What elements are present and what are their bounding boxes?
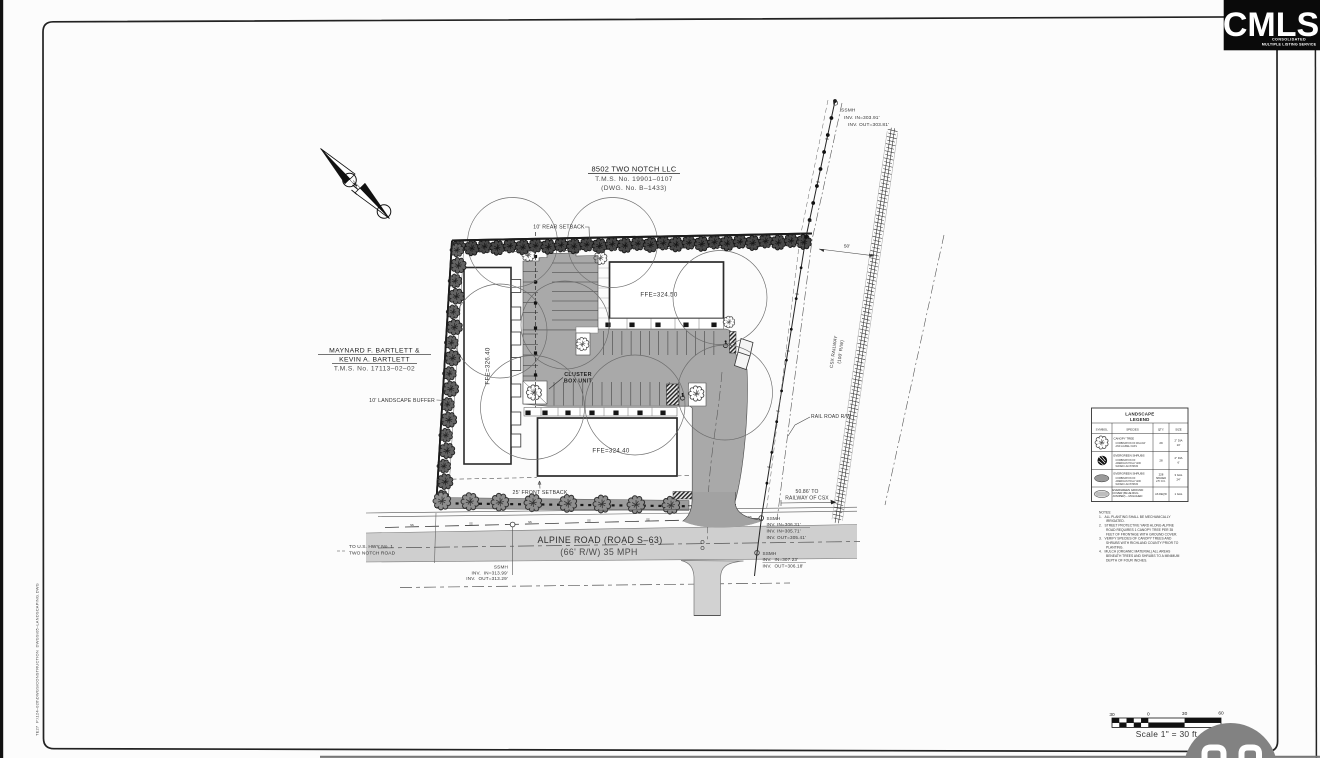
svg-text:ss: ss [469, 522, 473, 526]
svg-text:2" DIA: 2" DIA [1175, 439, 1183, 443]
svg-text:MULTIPLE LISTING SERVICE: MULTIPLE LISTING SERVICE [1262, 42, 1317, 46]
svg-text:10' LANDSCAPE BUFFER: 10' LANDSCAPE BUFFER [369, 398, 435, 404]
svg-text:8502 TWO NOTCH LLC: 8502 TWO NOTCH LLC [592, 165, 677, 174]
svg-text:EVERGREEN SHRUBS: EVERGREEN SHRUBS [1114, 454, 1145, 458]
svg-text:INV. OUT=303.81': INV. OUT=303.81' [848, 122, 889, 128]
svg-text:SSMH: SSMH [767, 516, 781, 521]
svg-text:30: 30 [1109, 712, 1115, 718]
svg-text:ss: ss [528, 520, 532, 524]
svg-text:Scale 1" = 30 ft: Scale 1" = 30 ft [1136, 729, 1198, 739]
svg-text:50': 50' [844, 244, 850, 250]
svg-text:2" DIA: 2" DIA [1175, 456, 1183, 460]
svg-text:COMBINATION OF: COMBINATION OF [1116, 459, 1136, 462]
svg-text:WAXED LIGUSTRUM: WAXED LIGUSTRUM [1116, 483, 1139, 486]
svg-text:ss: ss [808, 219, 812, 223]
svg-text:50.86' TO: 50.86' TO [796, 489, 819, 495]
svg-text:BENEATH TREES AND SHRUBS TO A: BENEATH TREES AND SHRUBS TO A MINIMUM [1106, 554, 1180, 558]
svg-text:LANDSCAPE: LANDSCAPE [1125, 412, 1154, 417]
svg-text:T.M.S. No. 17113–02–02: T.M.S. No. 17113–02–02 [334, 366, 415, 373]
svg-text:QTY.: QTY. [1158, 428, 1165, 432]
svg-text:ss: ss [646, 517, 650, 521]
svg-text:3. VERIFY SPECIES OF CANOPY: 3. VERIFY SPECIES OF CANOPY TREES AND [1099, 537, 1172, 541]
svg-text:ALPINE ROAD (ROAD S–63): ALPINE ROAD (ROAD S–63) [537, 535, 662, 545]
svg-text:DEPTH OF FOUR INCHES.: DEPTH OF FOUR INCHES. [1106, 558, 1147, 562]
svg-text:INV. OUT=305.41': INV. OUT=305.41' [767, 535, 807, 540]
svg-text:28: 28 [1159, 459, 1163, 463]
svg-text:AMERICAN HOLLY AND: AMERICAN HOLLY AND [1116, 480, 1142, 483]
svg-text:SIZE: SIZE [1175, 428, 1181, 432]
svg-text:(66' R/W) 35 MPH: (66' R/W) 35 MPH [560, 547, 638, 557]
svg-text:FFE=324.40: FFE=324.40 [592, 448, 629, 455]
svg-text:25' FRONT SETBACK: 25' FRONT SETBACK [512, 490, 567, 496]
svg-text:INV. IN=313.99': INV. IN=313.99' [472, 570, 508, 575]
svg-text:NOTES:: NOTES: [1099, 511, 1111, 515]
svg-text:0: 0 [1147, 712, 1150, 718]
svg-text:COMBINATION OF: COMBINATION OF [1116, 477, 1136, 480]
svg-text:3 GAL: 3 GAL [1175, 473, 1183, 477]
svg-text:IRRIGATED.: IRRIGATED. [1106, 519, 1125, 523]
svg-text:RAIL ROAD R/W: RAIL ROAD R/W [811, 414, 851, 420]
svg-text:COMBINATION OF WILLOW: COMBINATION OF WILLOW [1116, 442, 1147, 445]
svg-text:1 GAL: 1 GAL [1175, 492, 1183, 496]
svg-text:AS REQ'D: AS REQ'D [1155, 493, 1167, 496]
svg-text:SPECIES: SPECIES [1126, 428, 1139, 432]
svg-text:ss: ss [825, 137, 829, 141]
svg-text:ss: ss [786, 349, 790, 353]
svg-text:29: 29 [1159, 441, 1163, 445]
svg-text:30: 30 [1182, 711, 1188, 717]
svg-text:24": 24" [1176, 478, 1180, 482]
svg-text:TO U.S. HWY No. 1: TO U.S. HWY No. 1 [349, 544, 393, 550]
svg-text:SSMH: SSMH [763, 551, 777, 556]
svg-text:SYMBOL: SYMBOL [1096, 428, 1108, 432]
svg-text:ss: ss [795, 292, 799, 296]
svg-text:2.5' O.C.: 2.5' O.C. [1156, 480, 1166, 483]
svg-text:INV. OUT=306.18': INV. OUT=306.18' [763, 564, 804, 569]
svg-text:AMERICAN HOLLY AND: AMERICAN HOLLY AND [1116, 462, 1142, 465]
svg-text:TE27 P:\124–026\DWGS\CONSTRUC: TE27 P:\124–026\DWGS\CONSTRUCTION DWGS\0… [35, 583, 40, 736]
svg-text:CONSOLIDATED: CONSOLIDATED [1272, 38, 1306, 42]
svg-text:WAXED LIGUSTRUM: WAXED LIGUSTRUM [1116, 465, 1139, 468]
svg-text:INV. IN=306.31': INV. IN=306.31' [767, 522, 801, 527]
svg-text:60: 60 [1218, 711, 1224, 717]
svg-text:FFE=324.50: FFE=324.50 [640, 292, 677, 299]
svg-text:PLANTING.: PLANTING. [1106, 545, 1123, 549]
svg-text:JUNIPER) – MULCHED: JUNIPER) – MULCHED [1113, 494, 1143, 498]
svg-text:ss: ss [767, 465, 771, 469]
svg-text:10': 10' [1177, 443, 1181, 447]
svg-text:BOX UNIT: BOX UNIT [564, 379, 593, 385]
svg-text:FFE=326.40: FFE=326.40 [485, 347, 492, 384]
svg-text:(DWG. No. B–1433): (DWG. No. B–1433) [601, 185, 667, 192]
svg-text:CLUSTER: CLUSTER [564, 372, 592, 378]
svg-text:INV. OUT=313.29': INV. OUT=313.29' [466, 576, 508, 581]
svg-text:ss: ss [410, 523, 414, 527]
svg-text:ss: ss [776, 409, 780, 413]
svg-text:10' REAR SETBACK: 10' REAR SETBACK [533, 225, 585, 231]
svg-text:INV. IN=303.91': INV. IN=303.91' [844, 115, 880, 121]
svg-text:AND LAUREL OAKS: AND LAUREL OAKS [1116, 445, 1138, 448]
svg-text:SSMH: SSMH [841, 108, 856, 114]
svg-text:EVERGREEN SHRUBS: EVERGREEN SHRUBS [1114, 472, 1145, 476]
svg-text:T.M.S. No. 19901–0107: T.M.S. No. 19901–0107 [595, 176, 673, 183]
svg-text:ss: ss [587, 519, 591, 523]
svg-text:RAILWAY OF CSX: RAILWAY OF CSX [785, 496, 829, 502]
svg-text:KEVIN A. BARTLETT: KEVIN A. BARTLETT [339, 357, 410, 364]
svg-text:ROAD REQUIRES 1 CANOPY TREE PE: ROAD REQUIRES 1 CANOPY TREE PER 35 [1106, 528, 1173, 532]
svg-text:CANOPY TREE: CANOPY TREE [1114, 437, 1135, 441]
svg-text:INV. IN=307.23': INV. IN=307.23' [763, 557, 799, 562]
svg-text:INV. IN=305.71': INV. IN=305.71' [767, 529, 801, 534]
svg-text:SSMH: SSMH [494, 565, 508, 570]
svg-text:MAYNARD F. BARTLETT &: MAYNARD F. BARTLETT & [329, 348, 420, 355]
svg-text:LEGEND: LEGEND [1130, 417, 1150, 422]
svg-text:TWO NOTCH ROAD: TWO NOTCH ROAD [349, 551, 396, 557]
svg-text:ss: ss [816, 180, 820, 184]
